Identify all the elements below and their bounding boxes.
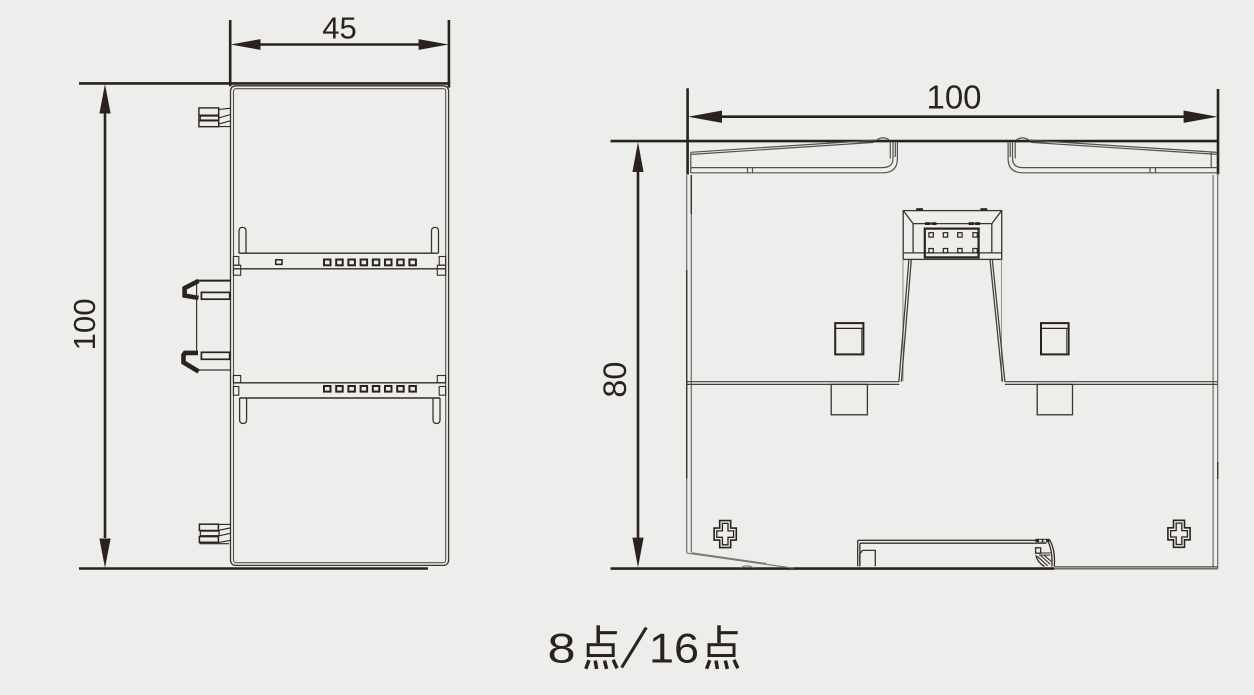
svg-text:8: 8 — [548, 624, 576, 671]
svg-text:16: 16 — [649, 624, 699, 671]
svg-text:100: 100 — [67, 298, 102, 350]
svg-text:80: 80 — [597, 362, 633, 398]
svg-text:100: 100 — [927, 79, 982, 116]
svg-text:45: 45 — [322, 11, 357, 46]
